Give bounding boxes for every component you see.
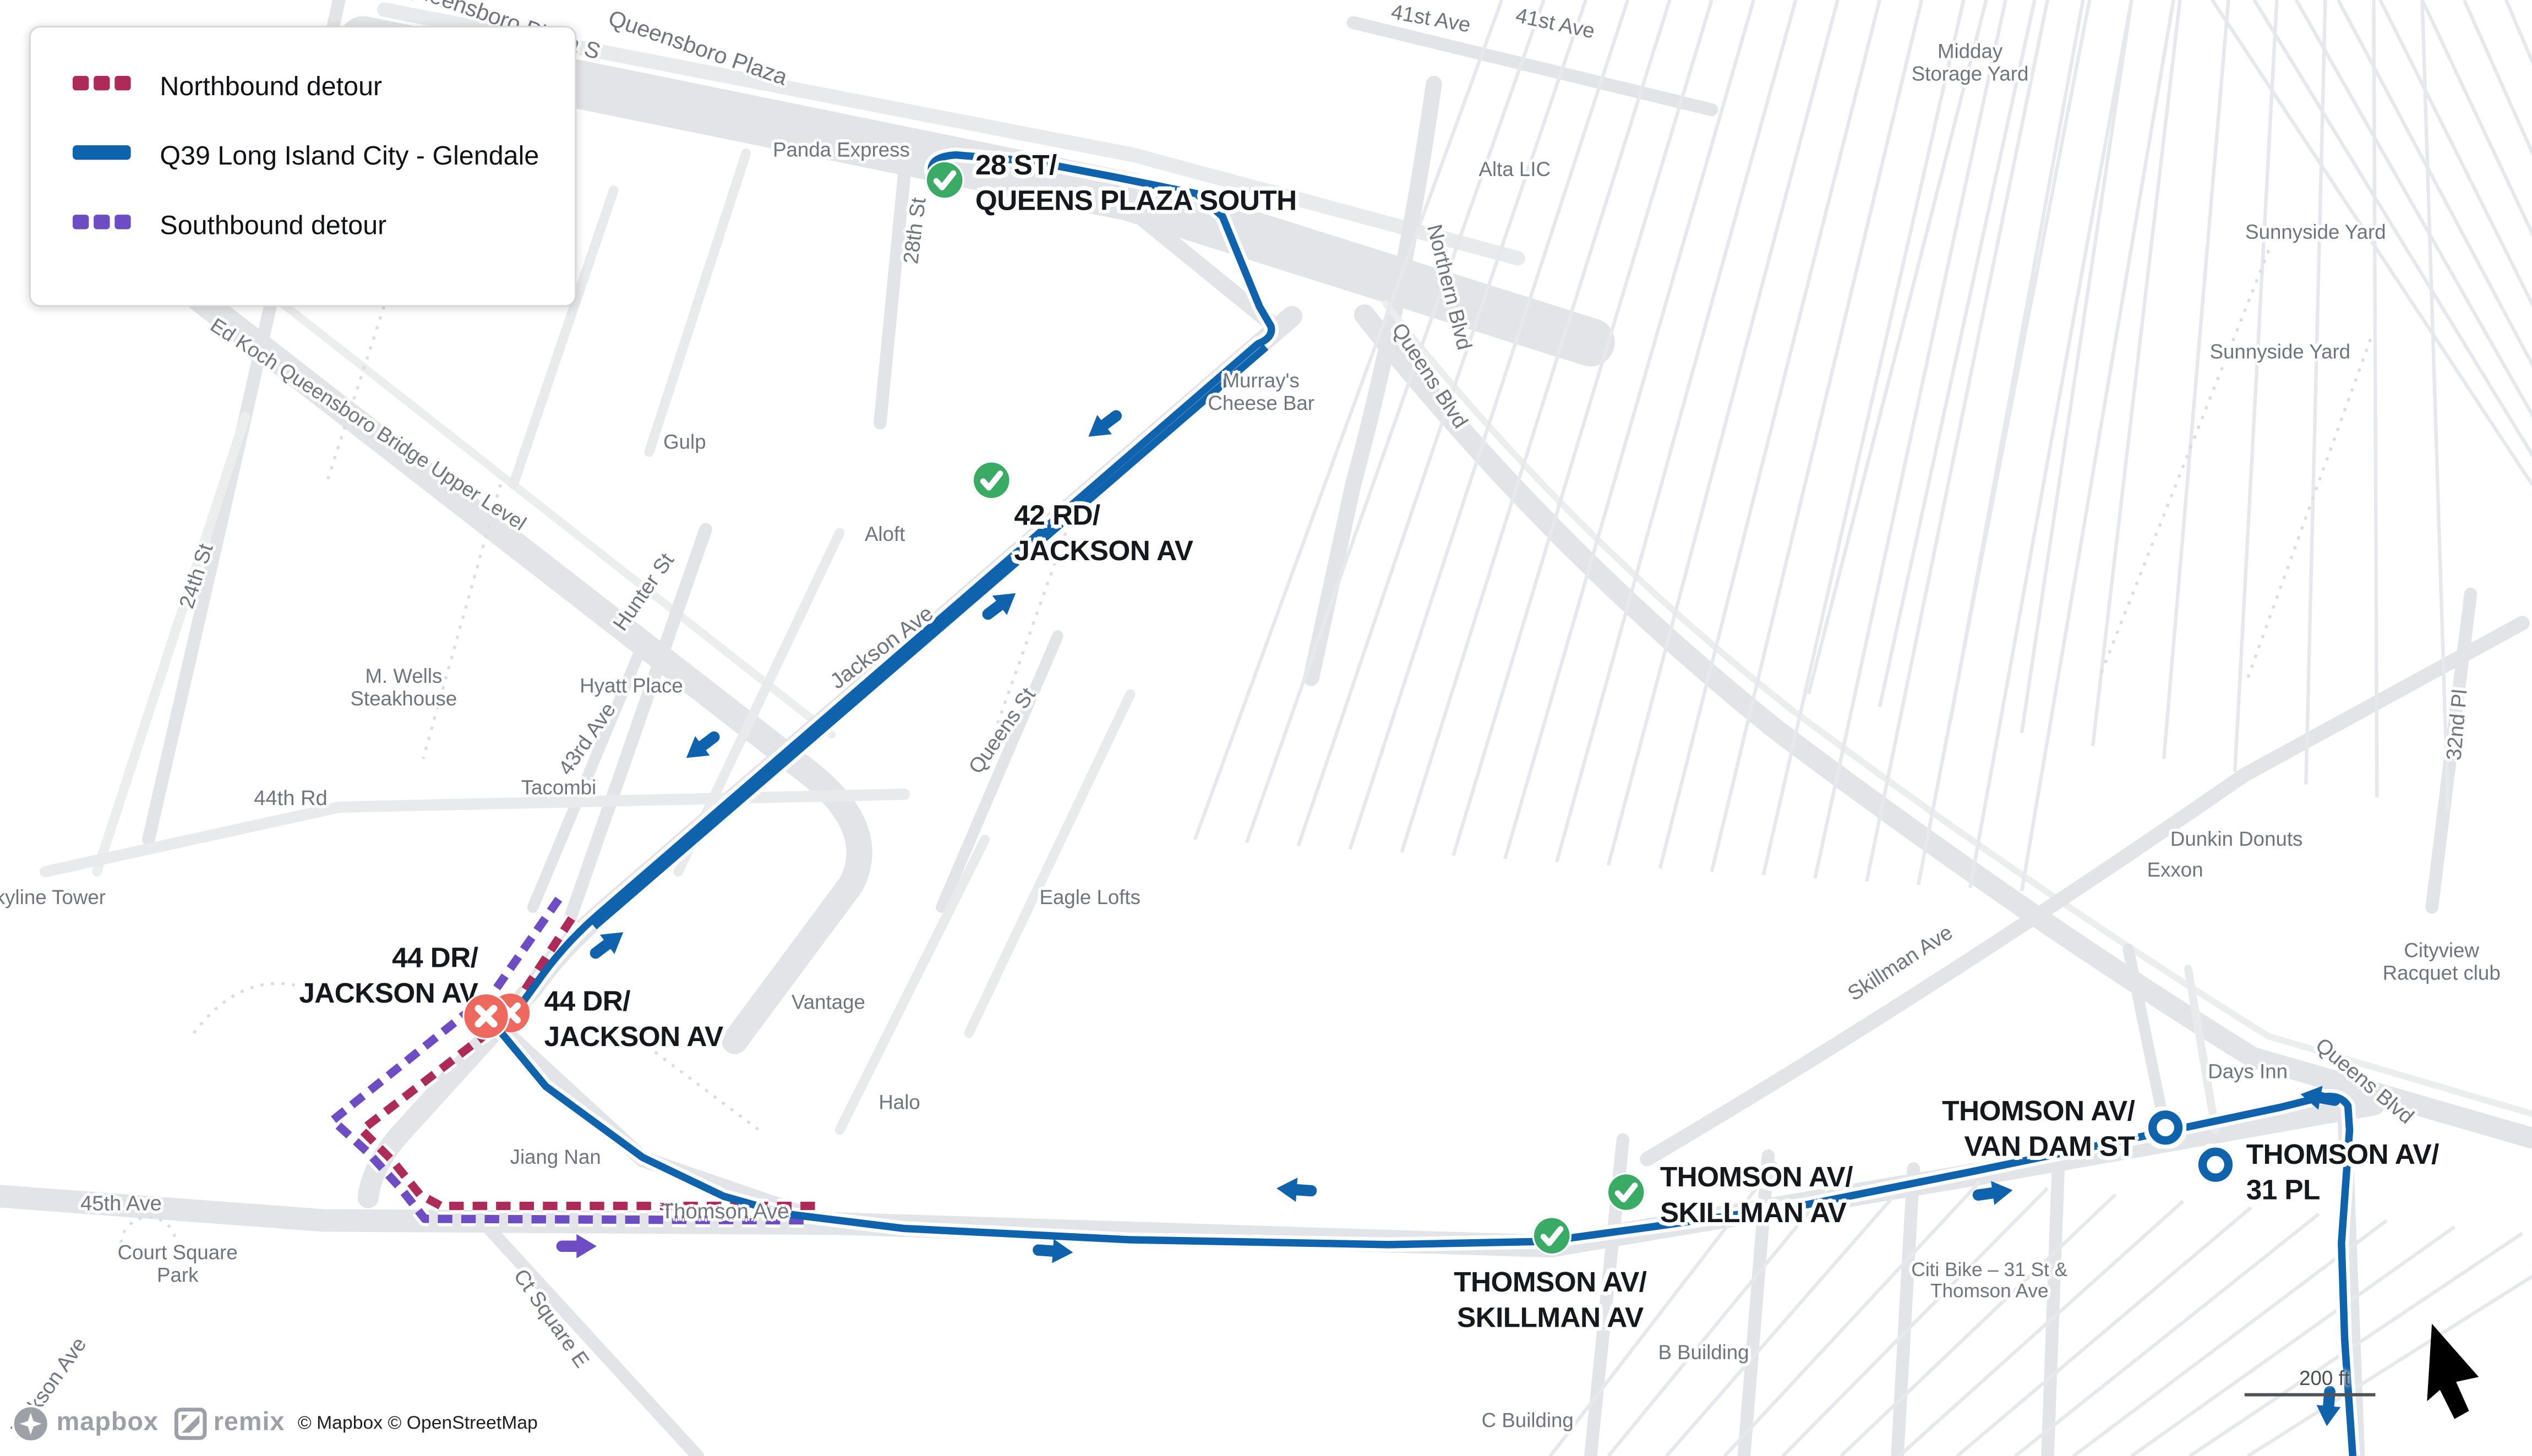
attribution-copyright[interactable]: © Mapbox © OpenStreetMap — [298, 1414, 538, 1433]
legend-item-southbound: Southbound detour — [73, 205, 543, 247]
legend-label: Southbound detour — [160, 205, 386, 247]
route-line-swatch — [73, 145, 131, 160]
legend-card: Northbound detour Q39 Long Island City -… — [29, 26, 577, 306]
route-direction-arrow-icon — [679, 727, 722, 768]
southbound-detour-swatch — [73, 215, 131, 229]
map-viewport[interactable]: Queensboro Plaza SQueensboro Plaza41st A… — [0, 0, 2532, 1456]
route-direction-arrow-icon — [1977, 1178, 2015, 1207]
legend-item-route: Q39 Long Island City - Glendale — [73, 135, 543, 177]
remix-logo-icon[interactable] — [174, 1408, 207, 1440]
legend-label: Q39 Long Island City - Glendale — [160, 135, 539, 177]
route-direction-arrow-icon — [1276, 1176, 1312, 1203]
mapbox-logo-icon[interactable] — [10, 1403, 52, 1444]
legend-item-northbound: Northbound detour — [73, 66, 543, 108]
remix-logo-wordmark[interactable]: remix — [214, 1409, 285, 1438]
legend-label: Northbound detour — [160, 66, 382, 108]
route-direction-arrow-icon — [1081, 406, 1123, 446]
mapbox-logo-wordmark[interactable]: mapbox — [57, 1409, 159, 1438]
map-screenshot: Queensboro Plaza SQueensboro Plaza41st A… — [0, 0, 2532, 1456]
route-direction-arrow-icon — [562, 1234, 597, 1258]
route-direction-arrow-icon — [2315, 1391, 2342, 1427]
northbound-detour-swatch — [73, 76, 131, 90]
route-direction-arrow-icon — [588, 923, 631, 963]
